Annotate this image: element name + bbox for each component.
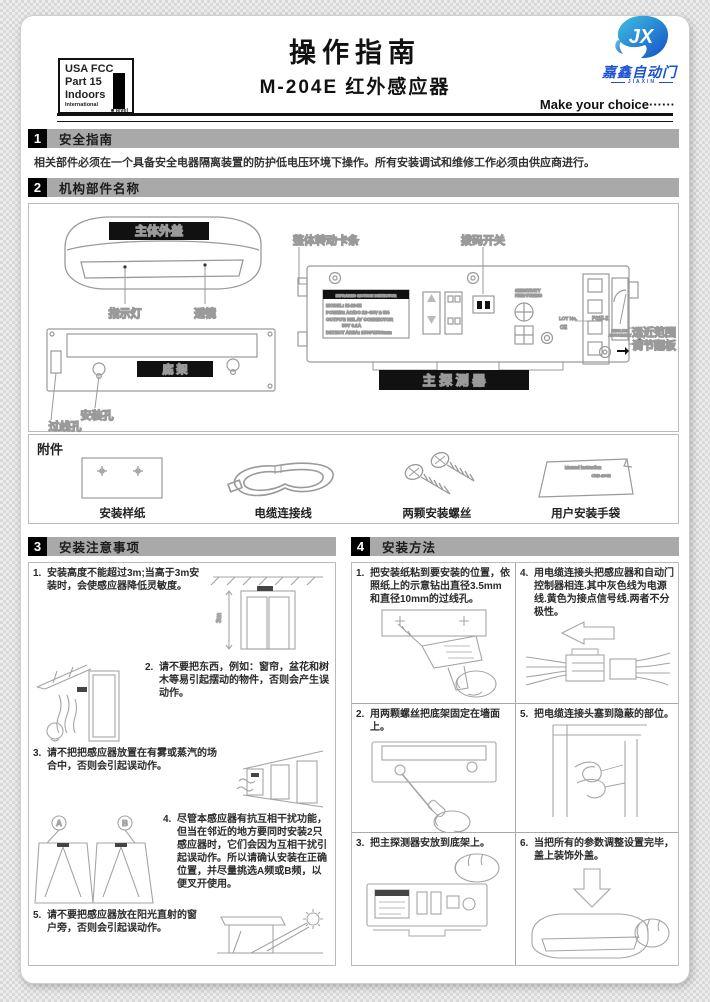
clip-bar-label: 整体转动卡条 xyxy=(292,233,360,247)
note-1: 1. 安装高度不能超过3m;当高于3m安装时，会使感应器降低灵敏度。 3m xyxy=(33,567,331,661)
step-6-text: 6. 当把所有的参数调整设置完毕，盖上装饰外盖。 xyxy=(520,837,674,863)
note-3-text: 3. 请不把把感应器放置在有雾或蒸汽的场合中，否则会引起误动作。 xyxy=(33,747,223,773)
accessories-box: 附件 安装样纸 电缆连接线 xyxy=(28,434,679,524)
section2-number: 2 xyxy=(28,178,47,197)
hide-connector-sketch xyxy=(537,721,657,821)
plate-l3: OUTPUT: RELAY CONNECTOR xyxy=(326,317,394,322)
height-3m-label: 3m xyxy=(216,613,223,623)
note-1-text: 1. 安装高度不能超过3m;当高于3m安装时，会使感应器降低灵敏度。 xyxy=(33,567,201,593)
header-divider xyxy=(57,113,673,122)
safety-text: 相关部件必须在一个具备安全电器隔离装置的防护低电压环境下操作。所有安装调试和维修… xyxy=(34,154,664,170)
base-label: 底 架 xyxy=(162,362,187,376)
accessory-screws: 两颗安装螺丝 xyxy=(398,450,476,521)
note-body: 安装高度不能超过3m;当高于3m安装时，会使感应器降低灵敏度。 xyxy=(47,567,201,593)
cable-connect-sketch xyxy=(522,619,672,697)
brand-logo: JX xyxy=(609,14,673,64)
note-number: 5. xyxy=(33,909,47,935)
section4-header: 4 安装方法 xyxy=(351,537,679,556)
accessory-caption: 用户安装手袋 xyxy=(551,505,620,521)
lens-label: 透镜 xyxy=(194,306,216,320)
flap-label1: 远近范围 xyxy=(632,325,676,339)
accessory-caption: 安装样纸 xyxy=(99,505,145,521)
manual-icon: Manual instruction CNB-204E xyxy=(531,454,641,502)
step-2-text: 2. 用两颗螺丝把底架固定在墙面上。 xyxy=(356,708,511,734)
note-body: 请不要把东西，例如：窗帘，盆花和树木等易引起摆动的物件，否则会产生误动作。 xyxy=(159,661,331,700)
accessory-caption: 两颗安装螺丝 xyxy=(402,505,471,521)
step-number: 4. xyxy=(520,567,534,619)
note-number: 3. xyxy=(33,747,47,773)
jx-logo-text: JX xyxy=(629,26,655,48)
manual-text1: Manual instruction xyxy=(564,465,601,470)
brand-subtitle: JIAXIN xyxy=(611,79,673,85)
near-far-label1: NEAR-FAR xyxy=(611,329,629,333)
accessory-template-paper: 安装样纸 xyxy=(76,454,168,521)
freq-a-label: A xyxy=(56,819,62,828)
precautions-box: 1. 安装高度不能超过3m;当高于3m安装时，会使感应器降低灵敏度。 3m xyxy=(28,562,336,966)
note-number: 1. xyxy=(33,567,47,593)
parts-diagram-box: 主体外盖 指示灯 透镜 底 架 安装孔 过线孔 整体转动卡条 拨码开关 xyxy=(28,203,679,432)
step-number: 6. xyxy=(520,837,534,863)
step-number: 5. xyxy=(520,708,534,721)
indicator-label: 指示灯 xyxy=(109,306,142,320)
step-body: 用电缆连接头把感应器和自动门控制器相连.其中灰色线为电源线.黄色为接点信号线.两… xyxy=(534,567,674,619)
step-4-text: 4. 用电缆连接头把感应器和自动门控制器相连.其中灰色线为电源线.黄色为接点信号… xyxy=(520,567,674,619)
sunlight-sketch xyxy=(211,909,329,957)
installation-steps-box: 1. 把安装纸粘到要安装的位置，依照纸上的示意钻出直径3.5mm和直径10mm的… xyxy=(351,562,679,966)
note-5: 5. 请不要把感应器放在阳光直射的窗户旁，否则会引起误动作。 xyxy=(33,909,331,959)
wire-hole-label: 过线孔 xyxy=(49,419,82,433)
steam-fog-sketch xyxy=(231,747,327,811)
accessory-cable: 电缆连接线 xyxy=(223,454,343,521)
step-number: 1. xyxy=(356,567,370,606)
freq-b-label: B xyxy=(122,819,128,828)
cover-on-sketch xyxy=(522,863,672,965)
plate-l1: MODEL: M-204E xyxy=(326,303,361,308)
note-4: A B 4. 尽管本感应器有抗互相干扰功能，但当在邻近的地方要同时安装2只感应器… xyxy=(33,813,331,909)
page-subtitle: M-204E 红外感应器 xyxy=(21,72,689,99)
step-1-text: 1. 把安装纸粘到要安装的位置，依照纸上的示意钻出直径3.5mm和直径10mm的… xyxy=(356,567,511,606)
section3-number: 3 xyxy=(28,537,47,556)
section4-number: 4 xyxy=(351,537,370,556)
detector-label: 主 探 测 器 xyxy=(423,373,487,388)
interference-sketch: A B xyxy=(33,813,159,907)
step-number: 2. xyxy=(356,708,370,734)
note-4-text: 4. 尽管本感应器有抗互相干扰功能，但当在邻近的地方要同时安装2只感应器时，它们… xyxy=(163,813,331,891)
base-diagram: 底 架 安装孔 过线孔 xyxy=(35,324,287,432)
screws-icon xyxy=(398,450,476,502)
flap-label2: 调节翻板 xyxy=(632,338,677,352)
brand-sub-text: JIAXIN xyxy=(628,79,656,85)
section1-title: 安全指南 xyxy=(59,129,113,148)
section1-header: 1 安全指南 xyxy=(28,129,679,148)
note-body: 请不把把感应器放置在有雾或蒸汽的场合中，否则会引起误动作。 xyxy=(47,747,223,773)
step-3: 3. 把主探测器安放到底架上。 xyxy=(352,832,515,965)
plate-header: INFRARED MOTION DETECTOR xyxy=(336,293,397,298)
manual-page: USA FCC Part 15 Indoors International ■ … xyxy=(20,15,690,984)
mount-hole-label: 安装孔 xyxy=(81,408,114,422)
accessory-manual: Manual instruction CNB-204E 用户安装手袋 xyxy=(531,454,641,521)
note-body: 尽管本感应器有抗互相干扰功能，但当在邻近的地方要同时安装2只感应器时，它们会因为… xyxy=(177,813,331,891)
step-number: 3. xyxy=(356,837,370,850)
drill-sketch xyxy=(364,606,504,698)
step-3-text: 3. 把主探测器安放到底架上。 xyxy=(356,837,511,850)
dash-right xyxy=(659,82,673,83)
step-5-text: 5. 把电缆连接头塞到隐蔽的部位。 xyxy=(520,708,674,721)
plate-l4: 50V 0.1A xyxy=(342,323,362,328)
accessory-caption: 电缆连接线 xyxy=(254,505,312,521)
step-body: 用两颗螺丝把底架固定在墙面上。 xyxy=(370,708,511,734)
note-number: 2. xyxy=(145,661,159,700)
note-3: 3. 请不把把感应器放置在有雾或蒸汽的场合中，否则会引起误动作。 xyxy=(33,747,331,813)
attach-detector-sketch xyxy=(359,850,509,954)
screwdriver-sketch xyxy=(360,734,508,832)
brand-tagline: Make your choice······ xyxy=(540,97,675,112)
step-5: 5. 把电缆连接头塞到隐蔽的部位。 xyxy=(515,703,678,832)
near-far-label2: ADJUSTMENT xyxy=(609,334,632,338)
section1-number: 1 xyxy=(28,129,47,148)
cover-diagram: 主体外盖 指示灯 透镜 xyxy=(35,208,287,326)
step-4: 4. 用电缆连接头把感应器和自动门控制器相连.其中灰色线为电源线.黄色为接点信号… xyxy=(515,563,678,703)
section3-header: 3 安装注意事项 xyxy=(28,537,336,556)
note-5-text: 5. 请不要把感应器放在阳光直射的窗户旁，否则会引起误动作。 xyxy=(33,909,205,935)
section2-header: 2 机构部件名称 xyxy=(28,178,679,197)
sensitivity-label2: FINE-TUNING xyxy=(515,293,542,298)
cable-icon xyxy=(223,454,343,502)
height-limit-sketch: 3m xyxy=(207,567,329,659)
dip-switch-label: 拨码开关 xyxy=(461,233,505,247)
step-6: 6. 当把所有的参数调整设置完毕，盖上装饰外盖。 xyxy=(515,832,678,965)
note-2: 2. 请不要把东西，例如：窗帘，盆花和树木等易引起摆动的物件，否则会产生误动作。 xyxy=(33,661,331,747)
lot-label: LOT No. xyxy=(559,316,577,322)
page-title: 操作指南 xyxy=(21,31,689,70)
step-1: 1. 把安装纸粘到要安装的位置，依照纸上的示意钻出直径3.5mm和直径10mm的… xyxy=(352,563,515,703)
template-paper-icon xyxy=(76,454,168,502)
note-2-text: 2. 请不要把东西，例如：窗帘，盆花和树木等易引起摆动的物件，否则会产生误动作。 xyxy=(145,661,331,700)
dash-left xyxy=(611,82,625,83)
detector-diagram: 整体转动卡条 拨码开关 INFRARED MOTION DETECTOR MOD… xyxy=(287,232,677,392)
note-number: 4. xyxy=(163,813,177,891)
jx-logo-icon: JX xyxy=(609,14,673,64)
accessories-row: 安装样纸 电缆连接线 xyxy=(49,451,668,521)
note-body: 请不要把感应器放在阳光直射的窗户旁，否则会引起误动作。 xyxy=(47,909,205,935)
plate-l5: DETECT AREA: 1500*1500mm xyxy=(326,330,392,335)
step-body: 把电缆连接头塞到隐蔽的部位。 xyxy=(534,708,674,721)
step-body: 当把所有的参数调整设置完毕，盖上装饰外盖。 xyxy=(534,837,674,863)
section3-title: 安装注意事项 xyxy=(59,537,140,556)
swaying-objects-sketch xyxy=(33,661,141,745)
step-2: 2. 用两颗螺丝把底架固定在墙面上。 xyxy=(352,703,515,832)
step-body: 把主探测器安放到底架上。 xyxy=(370,837,490,850)
section4-title: 安装方法 xyxy=(382,537,436,556)
step-body: 把安装纸粘到要安装的位置，依照纸上的示意钻出直径3.5mm和直径10mm的过线孔… xyxy=(370,567,511,606)
manual-text2: CNB-204E xyxy=(591,473,610,478)
cover-label: 主体外盖 xyxy=(135,223,183,238)
plate-l2: POWER: AC/DC 12~36V ± 5% xyxy=(326,310,390,315)
ce-mark: CE xyxy=(560,325,568,331)
section2-title: 机构部件名称 xyxy=(59,178,140,197)
